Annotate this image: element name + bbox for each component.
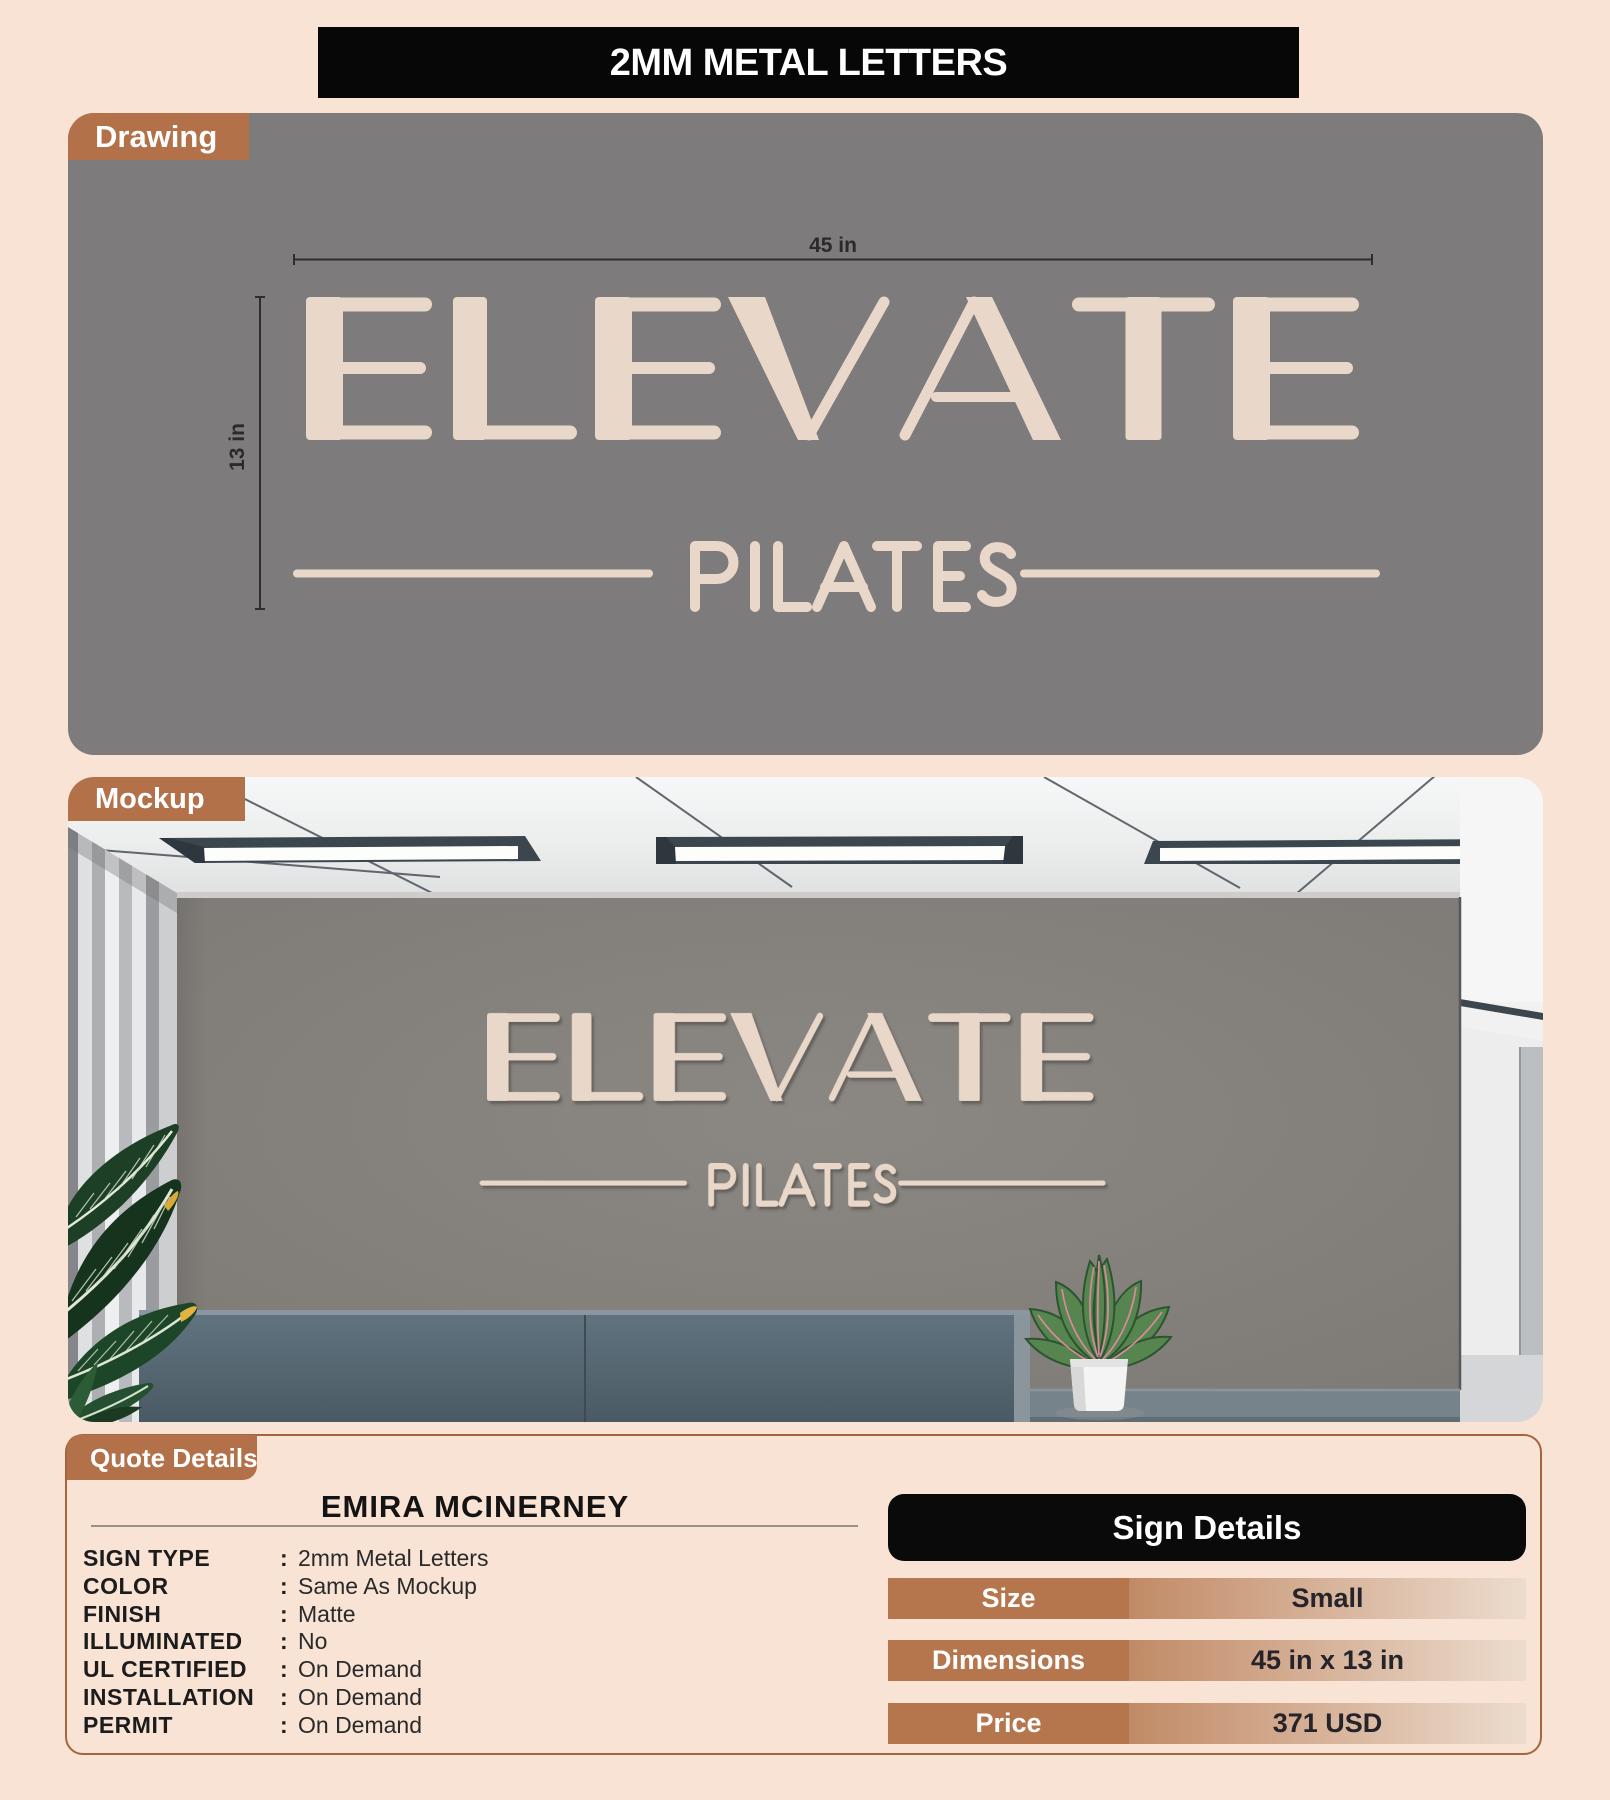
svg-text:45 in: 45 in — [809, 234, 857, 257]
svg-text:13 in: 13 in — [226, 423, 249, 471]
